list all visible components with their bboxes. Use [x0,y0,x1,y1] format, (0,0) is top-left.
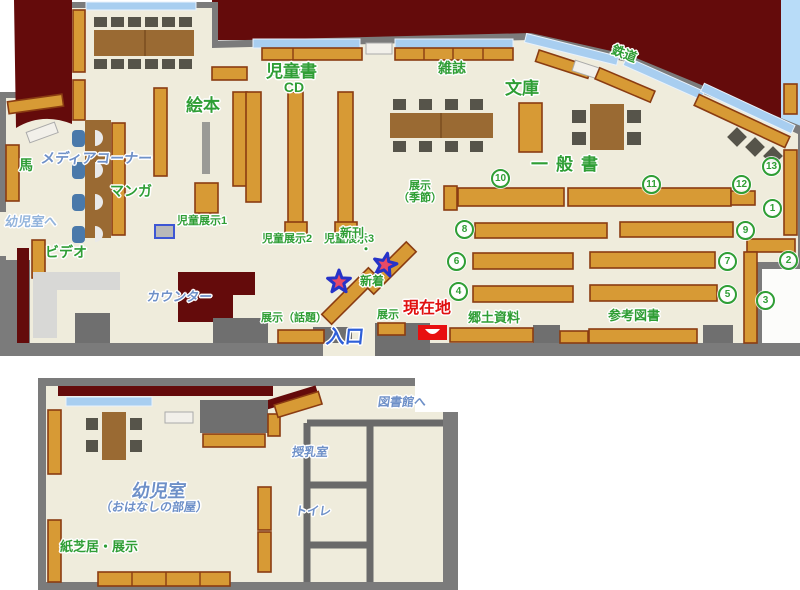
shelf-number-5: 5 [718,285,737,304]
bookshelf-row [98,572,230,586]
bookshelf-row [620,222,733,237]
label-ohanashi: （おはなしの部屋） [99,501,209,514]
bookshelf [154,88,167,176]
label-yojishitsu-e: 幼児室へ [4,215,58,230]
label-ehon: 絵本 [186,96,220,115]
label-shinkan-dot: ・ [360,243,372,256]
closed-strip-left [17,248,29,343]
label-toire: トイレ [294,505,332,518]
label-yojishitsu: 幼児室 [120,481,199,501]
label-shinchaku: 新着 [360,275,384,288]
label-bunko: 文庫 [505,79,539,98]
bookshelf [212,67,247,80]
bookshelf-row [589,329,697,343]
label-uma: 馬 [19,158,33,174]
bookshelf-row [590,285,717,301]
shelf-number-6: 6 [447,252,466,271]
shelf-number-9: 9 [736,221,755,240]
label-sanko-tosho: 参考図書 [608,309,660,324]
children-display-1 [195,183,218,213]
bookshelf-row [458,188,564,206]
label-jido-tenji-1: 児童展示1 [177,215,227,227]
bookshelf [73,80,85,120]
label-manga: マンガ [110,184,152,200]
bookshelf [73,10,85,72]
label-toshokan-e: 図書館へ [377,396,427,409]
bookshelf [258,487,271,530]
shelf-number-10: 10 [491,169,510,188]
label-iriguchi: 入口 [325,327,365,348]
manga-shelf [112,123,125,235]
label-media-corner: メディアコーナー [40,151,153,167]
shelf-number-11: 11 [642,175,661,194]
display-shelf [378,323,405,335]
shelf-number-13: 13 [762,157,781,176]
bookshelf-row [475,223,607,238]
shelf-number-4: 4 [449,282,468,301]
label-shinkan: 新刊 [340,227,364,240]
window-infant-room [66,397,152,406]
label-genzaichi: 現在地 [403,300,451,318]
shelf-number-12: 12 [732,175,751,194]
wall-shelf [262,48,362,60]
white-plate [165,412,193,423]
label-jidosho: 児童書 [266,62,317,81]
pillar [533,325,560,343]
horse-shelf [6,145,19,201]
pillar [213,318,268,343]
kiosk-box [155,225,174,238]
bookshelf-column [338,92,353,223]
bookshelf [784,84,797,114]
window-topleft-room [86,2,196,10]
bookshelf [258,532,271,572]
label-junyushitsu: 授乳室 [291,446,329,459]
topic-display-shelf [278,330,324,343]
shelf-number-8: 8 [455,220,474,239]
bunko-shelf [519,103,542,152]
bookshelf-row [473,253,573,269]
bookshelf-column [288,92,303,223]
shelf-number-7: 7 [718,252,737,271]
main-building [0,0,800,356]
label-tenji-mini: 展示 [377,309,399,321]
bookshelf [48,410,61,474]
bookshelf-row [590,252,715,268]
window-top-2 [395,39,513,48]
label-video: ビデオ [45,245,87,261]
pillar [703,325,733,343]
picture-book-stand [202,122,210,174]
bookshelf-row [473,286,573,302]
bookshelf [203,434,265,447]
bookshelf-row [560,331,588,343]
label-kyodo-shiryo: 郷土資料 [468,311,520,326]
reading-table-2 [590,104,624,150]
shelf-number-2: 2 [779,251,798,270]
pillar [75,313,110,343]
label-ippansho: 一般書 [531,155,606,174]
label-kamishibai: 紙芝居・展示 [60,540,138,555]
door-plate-top [366,43,392,54]
reading-table [94,30,194,56]
shelf-number-1: 1 [763,199,782,218]
bookshelf-column [246,92,261,202]
dark-block [200,400,268,433]
bookshelf [233,92,247,186]
bookshelf [784,150,797,235]
bookshelf-row [450,328,533,342]
label-counter: カウンター [146,290,213,305]
closed-band-top [58,386,273,396]
label-zasshi: 雑誌 [438,61,466,77]
label-tenji-wadai: 展示（話題） [261,312,327,324]
window-top-1 [253,39,360,48]
label-jido-tenji-2: 児童展示2 [262,233,312,245]
shelf-number-3: 3 [756,291,775,310]
infant-table [102,412,126,460]
wall-shelf [395,48,513,60]
bookshelf [744,252,757,343]
library-floor-map: DVD・ CD絵本児童書雑誌文庫鉄道一般書馬メディアコーナーマンガ幼児室へビデオ… [0,0,800,590]
label-tenji-kisetsu: 展示 （季節） [394,180,446,205]
